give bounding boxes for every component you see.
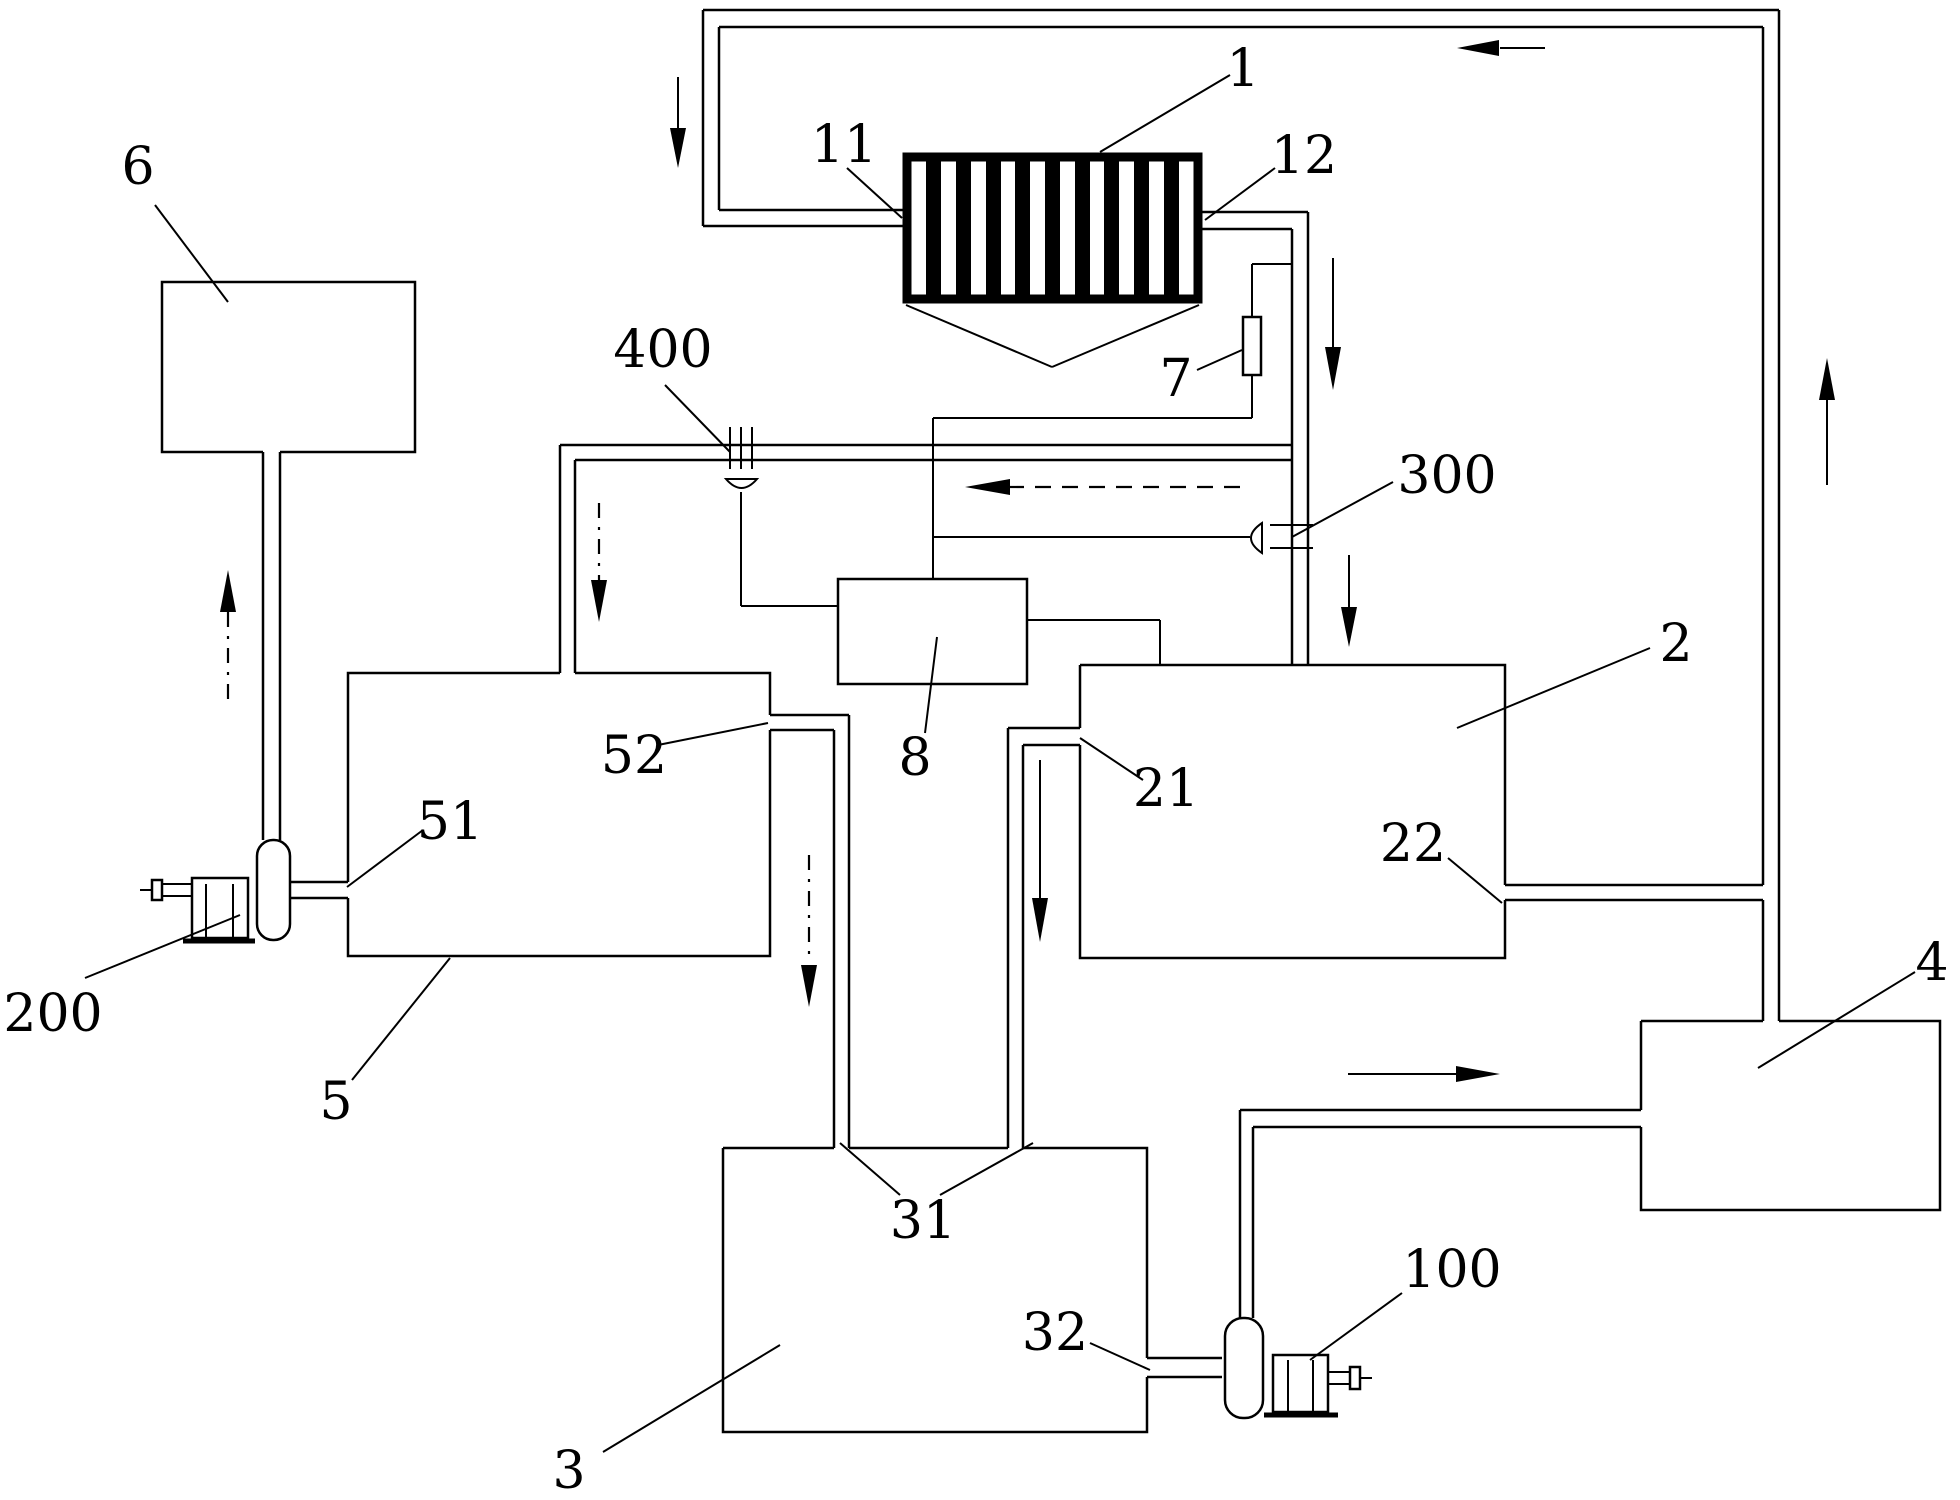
flow-arrow-down-valve300-icon [1341, 555, 1357, 647]
flow-arrow-down-radiator-outlet-icon [1325, 258, 1341, 390]
label-22: 22 [1380, 814, 1446, 874]
dashed-arrow-up-box6-icon [220, 570, 236, 700]
radiator-fins-icon [926, 158, 1179, 298]
label-51: 51 [417, 792, 483, 852]
valve-400 [726, 427, 838, 606]
box-6 [162, 282, 415, 452]
flow-arrow-down-pipe21-icon [1032, 760, 1048, 942]
label-400: 400 [613, 320, 712, 380]
box-5 [348, 673, 770, 956]
label-12: 12 [1271, 126, 1337, 186]
label-52: 52 [601, 726, 667, 786]
label-7: 7 [1159, 349, 1192, 409]
label-200: 200 [3, 984, 102, 1044]
dashed-arrow-left-icon [965, 479, 1240, 495]
component-7 [1243, 317, 1261, 375]
dashed-arrow-down-pipe52-icon [801, 855, 817, 1007]
label-4: 4 [1915, 933, 1948, 993]
box-4 [1641, 1021, 1940, 1210]
cooling-system-schematic: 1 11 12 6 400 300 7 2 8 52 21 51 22 5 20… [0, 0, 1960, 1500]
flow-arrow-right-box4-icon [1348, 1066, 1500, 1082]
flow-arrow-up-right-loop-icon [1819, 358, 1835, 485]
pipe-32 [1147, 1358, 1222, 1377]
flow-arrow-down-top-left-icon [670, 77, 686, 168]
box-6-down-pipe [263, 452, 280, 840]
valve-300-sensor-icon [1251, 523, 1262, 553]
flow-arrow-left-top-icon [1457, 40, 1545, 56]
label-2: 2 [1659, 614, 1692, 674]
dashed-arrow-down-box5-inlet-icon [591, 503, 607, 622]
radiator [906, 157, 1199, 367]
label-1: 1 [1226, 39, 1259, 99]
label-32: 32 [1022, 1303, 1088, 1363]
radiator-funnel [906, 305, 1199, 367]
pump-200-outlet-pipe [290, 882, 348, 898]
pipe-21 [1008, 728, 1080, 1148]
pump-100 [1225, 1318, 1372, 1418]
label-31: 31 [890, 1191, 956, 1251]
pipe-22 [1505, 885, 1763, 900]
label-3: 3 [552, 1441, 585, 1500]
label-100: 100 [1402, 1240, 1501, 1300]
valve-300 [933, 523, 1313, 553]
label-8: 8 [898, 728, 931, 788]
radiator-outlet-pipe [1202, 212, 1308, 665]
label-21: 21 [1133, 759, 1199, 819]
box-8-right-link [1027, 620, 1160, 665]
label-11: 11 [811, 115, 877, 175]
bypass-branch-pipe [933, 264, 1292, 579]
label-6: 6 [121, 137, 154, 197]
label-5: 5 [319, 1072, 352, 1132]
label-300: 300 [1397, 446, 1496, 506]
valve-400-cup-icon [726, 479, 757, 488]
patent-figure-canvas: 1 11 12 6 400 300 7 2 8 52 21 51 22 5 20… [0, 0, 1960, 1500]
